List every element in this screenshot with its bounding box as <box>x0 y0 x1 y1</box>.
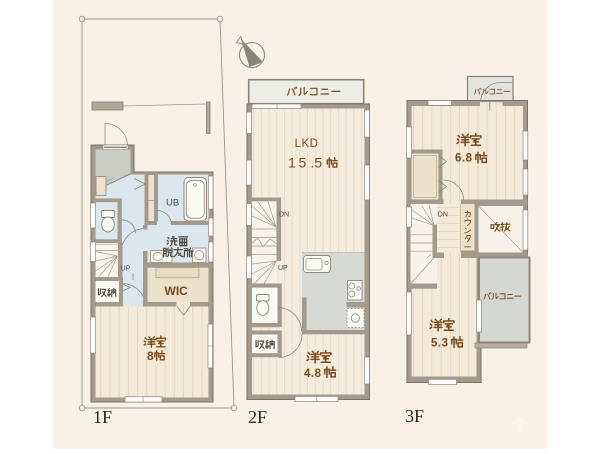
svg-text:.5: .5 <box>311 155 323 171</box>
svg-text:WIC: WIC <box>165 284 189 298</box>
svg-text:DN: DN <box>438 212 448 219</box>
svg-text:DN: DN <box>279 212 289 219</box>
svg-text:2F: 2F <box>248 407 267 427</box>
svg-text:4.8: 4.8 <box>304 368 322 380</box>
svg-text:3F: 3F <box>405 406 424 426</box>
svg-text:UP: UP <box>278 265 288 272</box>
svg-text:UB: UB <box>166 198 179 209</box>
svg-text:1: 1 <box>288 155 296 171</box>
svg-text:8: 8 <box>147 349 154 363</box>
svg-text:5.3: 5.3 <box>431 338 449 350</box>
svg-text:5: 5 <box>299 155 307 171</box>
svg-text:UP: UP <box>121 266 131 273</box>
svg-text:6.8: 6.8 <box>455 153 473 165</box>
svg-text:1F: 1F <box>93 407 112 427</box>
svg-text:LKD: LKD <box>295 138 319 150</box>
